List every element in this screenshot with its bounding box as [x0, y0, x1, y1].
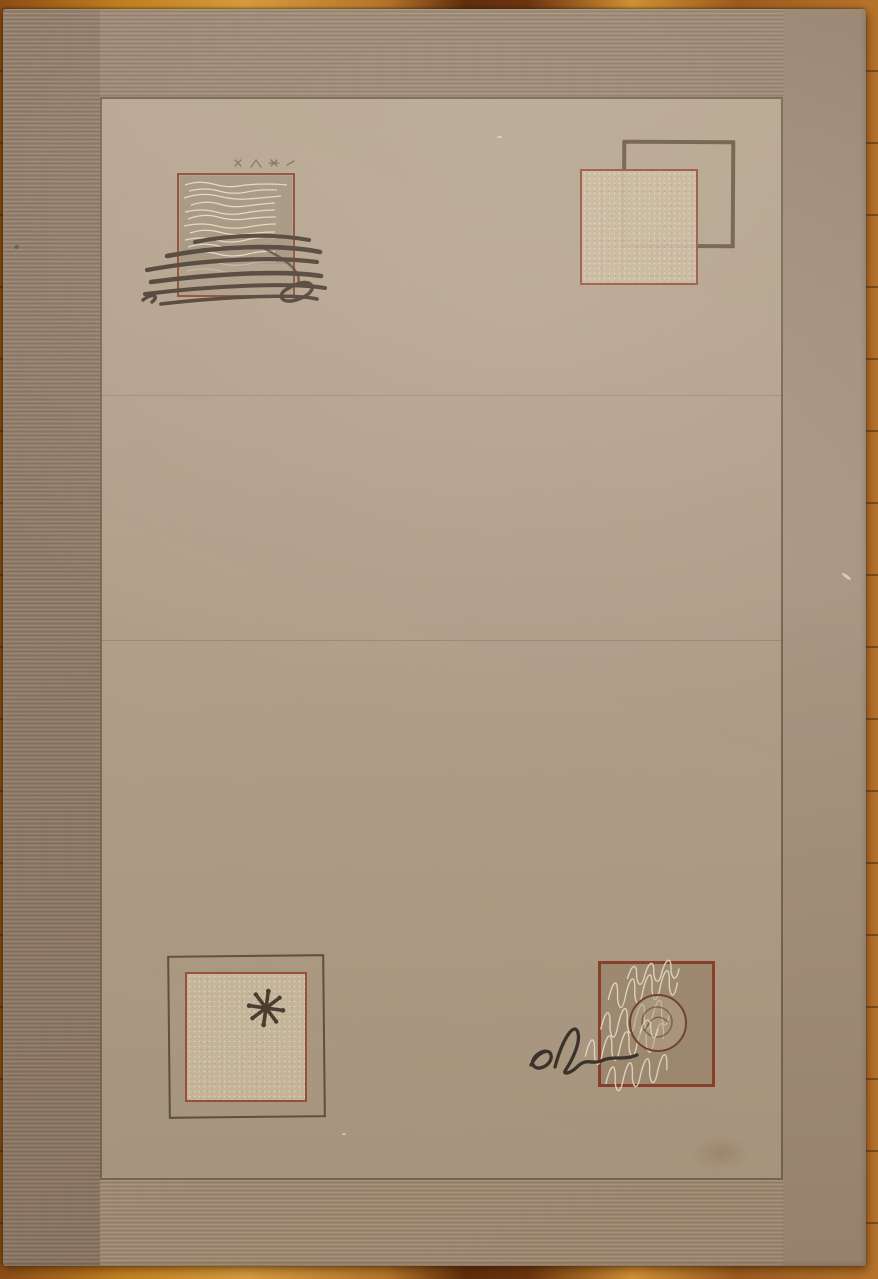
weave-seam-line: [102, 395, 781, 396]
weave-seam-line: [102, 640, 781, 641]
dark-scribble-strokes: [139, 226, 334, 318]
rug-border-band-left: [3, 9, 100, 1266]
faint-stitch-marks: [231, 155, 301, 171]
rug-photo: [0, 0, 878, 1279]
asterisk-icon: [244, 986, 288, 1030]
rug: [3, 9, 866, 1266]
lint-speck: [497, 136, 502, 138]
rug-border-band-right: [783, 9, 866, 1266]
rug-border-band-bottom: [3, 1180, 866, 1266]
rug-border-band-top: [3, 9, 866, 97]
cream-sparkle-square: [580, 169, 698, 285]
faint-stain: [693, 1137, 748, 1169]
dark-fleck: [14, 245, 19, 249]
cursive-el-signature: [521, 1009, 641, 1089]
lint-speck: [342, 1133, 346, 1135]
